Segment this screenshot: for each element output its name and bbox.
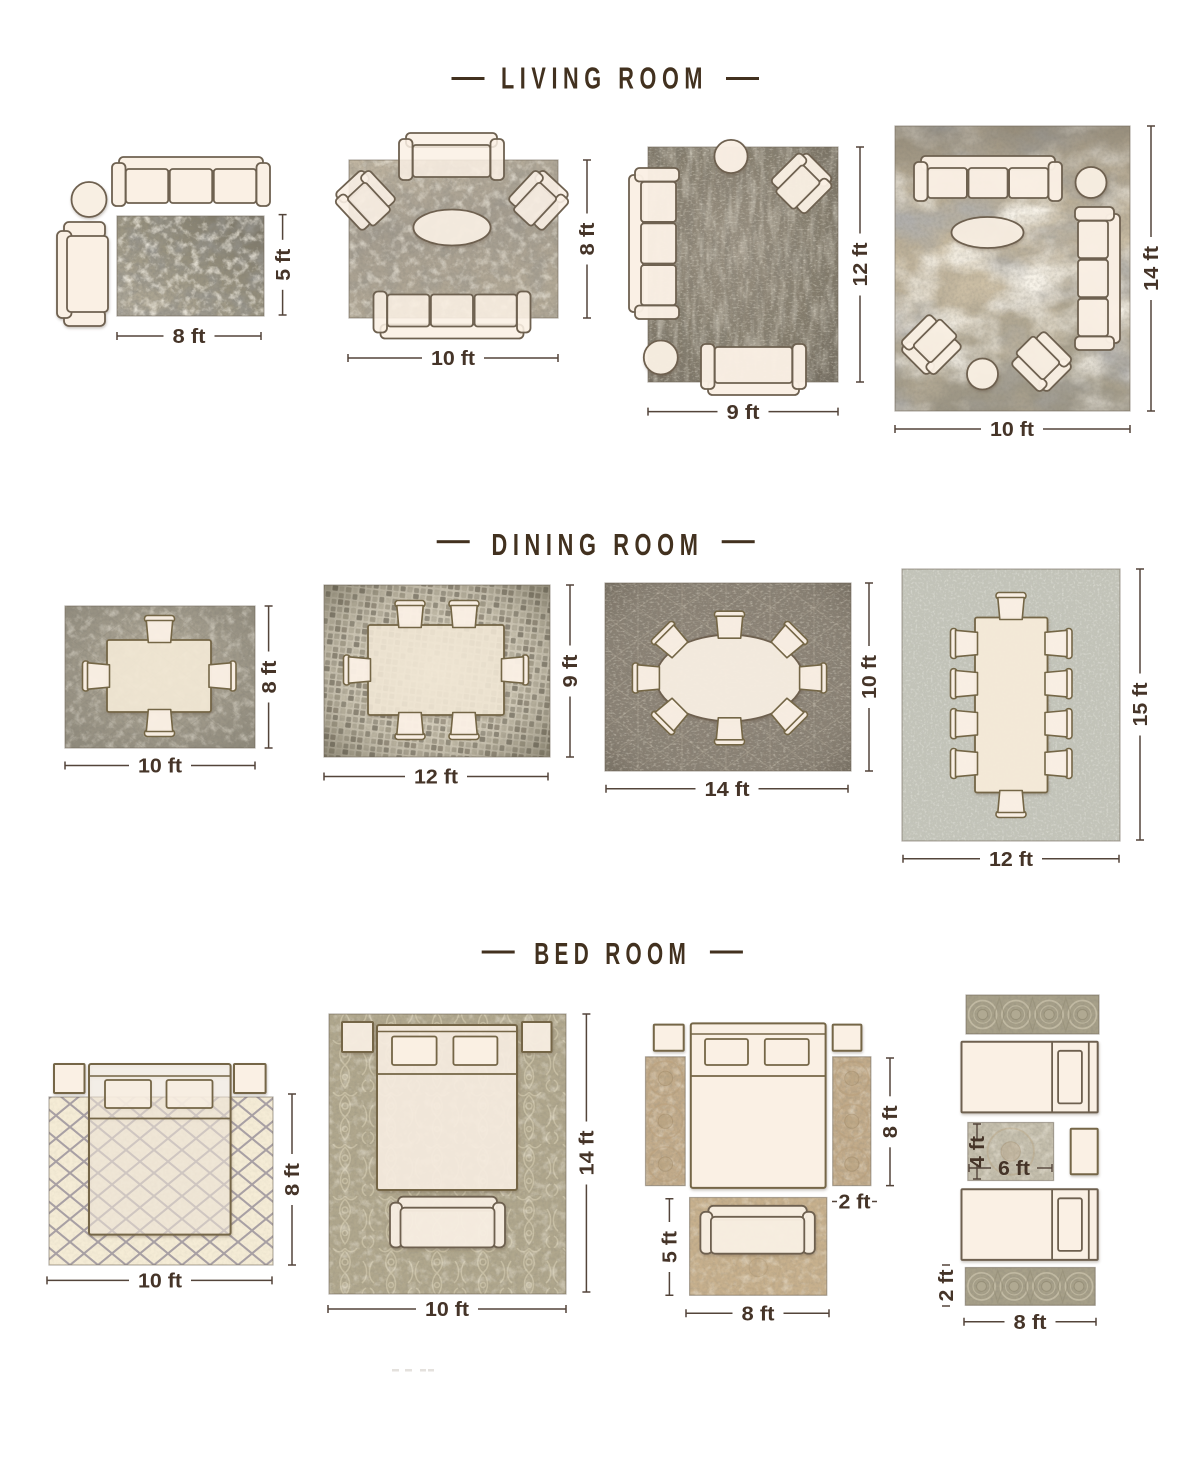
svg-text:DINING ROOM: DINING ROOM xyxy=(492,527,704,562)
svg-text:10 ft: 10 ft xyxy=(138,755,182,778)
svg-text:12 ft: 12 ft xyxy=(849,242,872,286)
svg-text:14 ft: 14 ft xyxy=(705,778,750,801)
svg-text:9 ft: 9 ft xyxy=(727,401,760,424)
svg-text:8 ft: 8 ft xyxy=(258,660,281,693)
svg-text:15 ft: 15 ft xyxy=(1129,682,1152,726)
svg-text:12 ft: 12 ft xyxy=(989,848,1033,871)
svg-text:2 ft: 2 ft xyxy=(839,1191,871,1214)
svg-text:2 ft: 2 ft xyxy=(935,1269,958,1301)
svg-text:12 ft: 12 ft xyxy=(414,766,458,789)
svg-text:10 ft: 10 ft xyxy=(138,1270,182,1293)
svg-text:8 ft: 8 ft xyxy=(879,1105,902,1138)
svg-text:10 ft: 10 ft xyxy=(431,347,475,370)
svg-text:9 ft: 9 ft xyxy=(559,654,582,687)
svg-text:8 ft: 8 ft xyxy=(742,1302,775,1325)
svg-text:4 ft: 4 ft xyxy=(966,1136,989,1168)
svg-text:5 ft: 5 ft xyxy=(659,1231,682,1263)
svg-text:5 ft: 5 ft xyxy=(272,249,295,281)
svg-text:10 ft: 10 ft xyxy=(425,1298,469,1321)
svg-text:14 ft: 14 ft xyxy=(576,1130,599,1175)
svg-text:8 ft: 8 ft xyxy=(281,1163,304,1196)
svg-text:8 ft: 8 ft xyxy=(173,325,206,348)
svg-text:10 ft: 10 ft xyxy=(858,655,881,699)
svg-text:LIVING ROOM: LIVING ROOM xyxy=(501,61,708,96)
svg-text:14 ft: 14 ft xyxy=(1140,246,1163,291)
svg-text:6 ft: 6 ft xyxy=(998,1157,1030,1180)
svg-text:BED ROOM: BED ROOM xyxy=(534,936,691,971)
svg-text:8 ft: 8 ft xyxy=(1014,1311,1047,1334)
svg-text:10 ft: 10 ft xyxy=(990,418,1034,441)
svg-text:8 ft: 8 ft xyxy=(576,222,599,255)
